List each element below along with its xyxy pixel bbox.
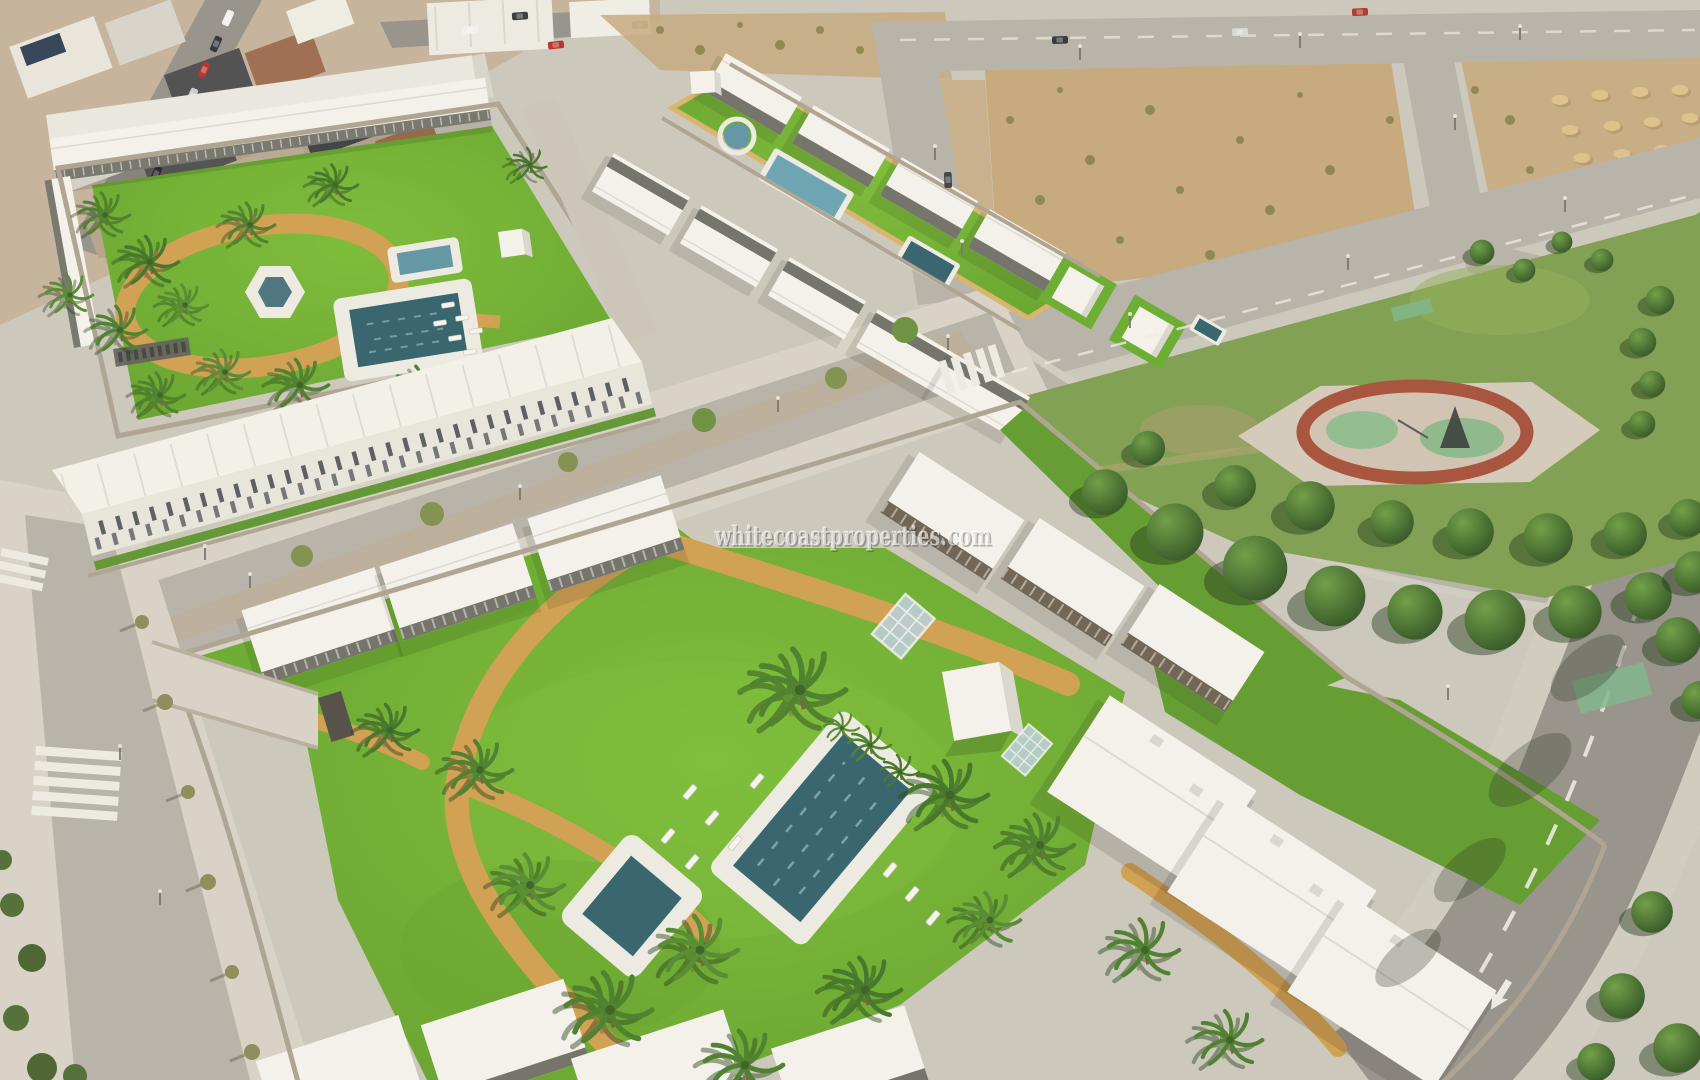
watermark: whitecoastproperties.com whitecoastprope… — [714, 521, 993, 554]
aerial-property-render: whitecoastproperties.com whitecoastprope… — [0, 0, 1700, 1080]
render-canvas: whitecoastproperties.com whitecoastprope… — [0, 0, 1700, 1080]
watermark-text: whitecoastproperties.com — [714, 521, 992, 552]
